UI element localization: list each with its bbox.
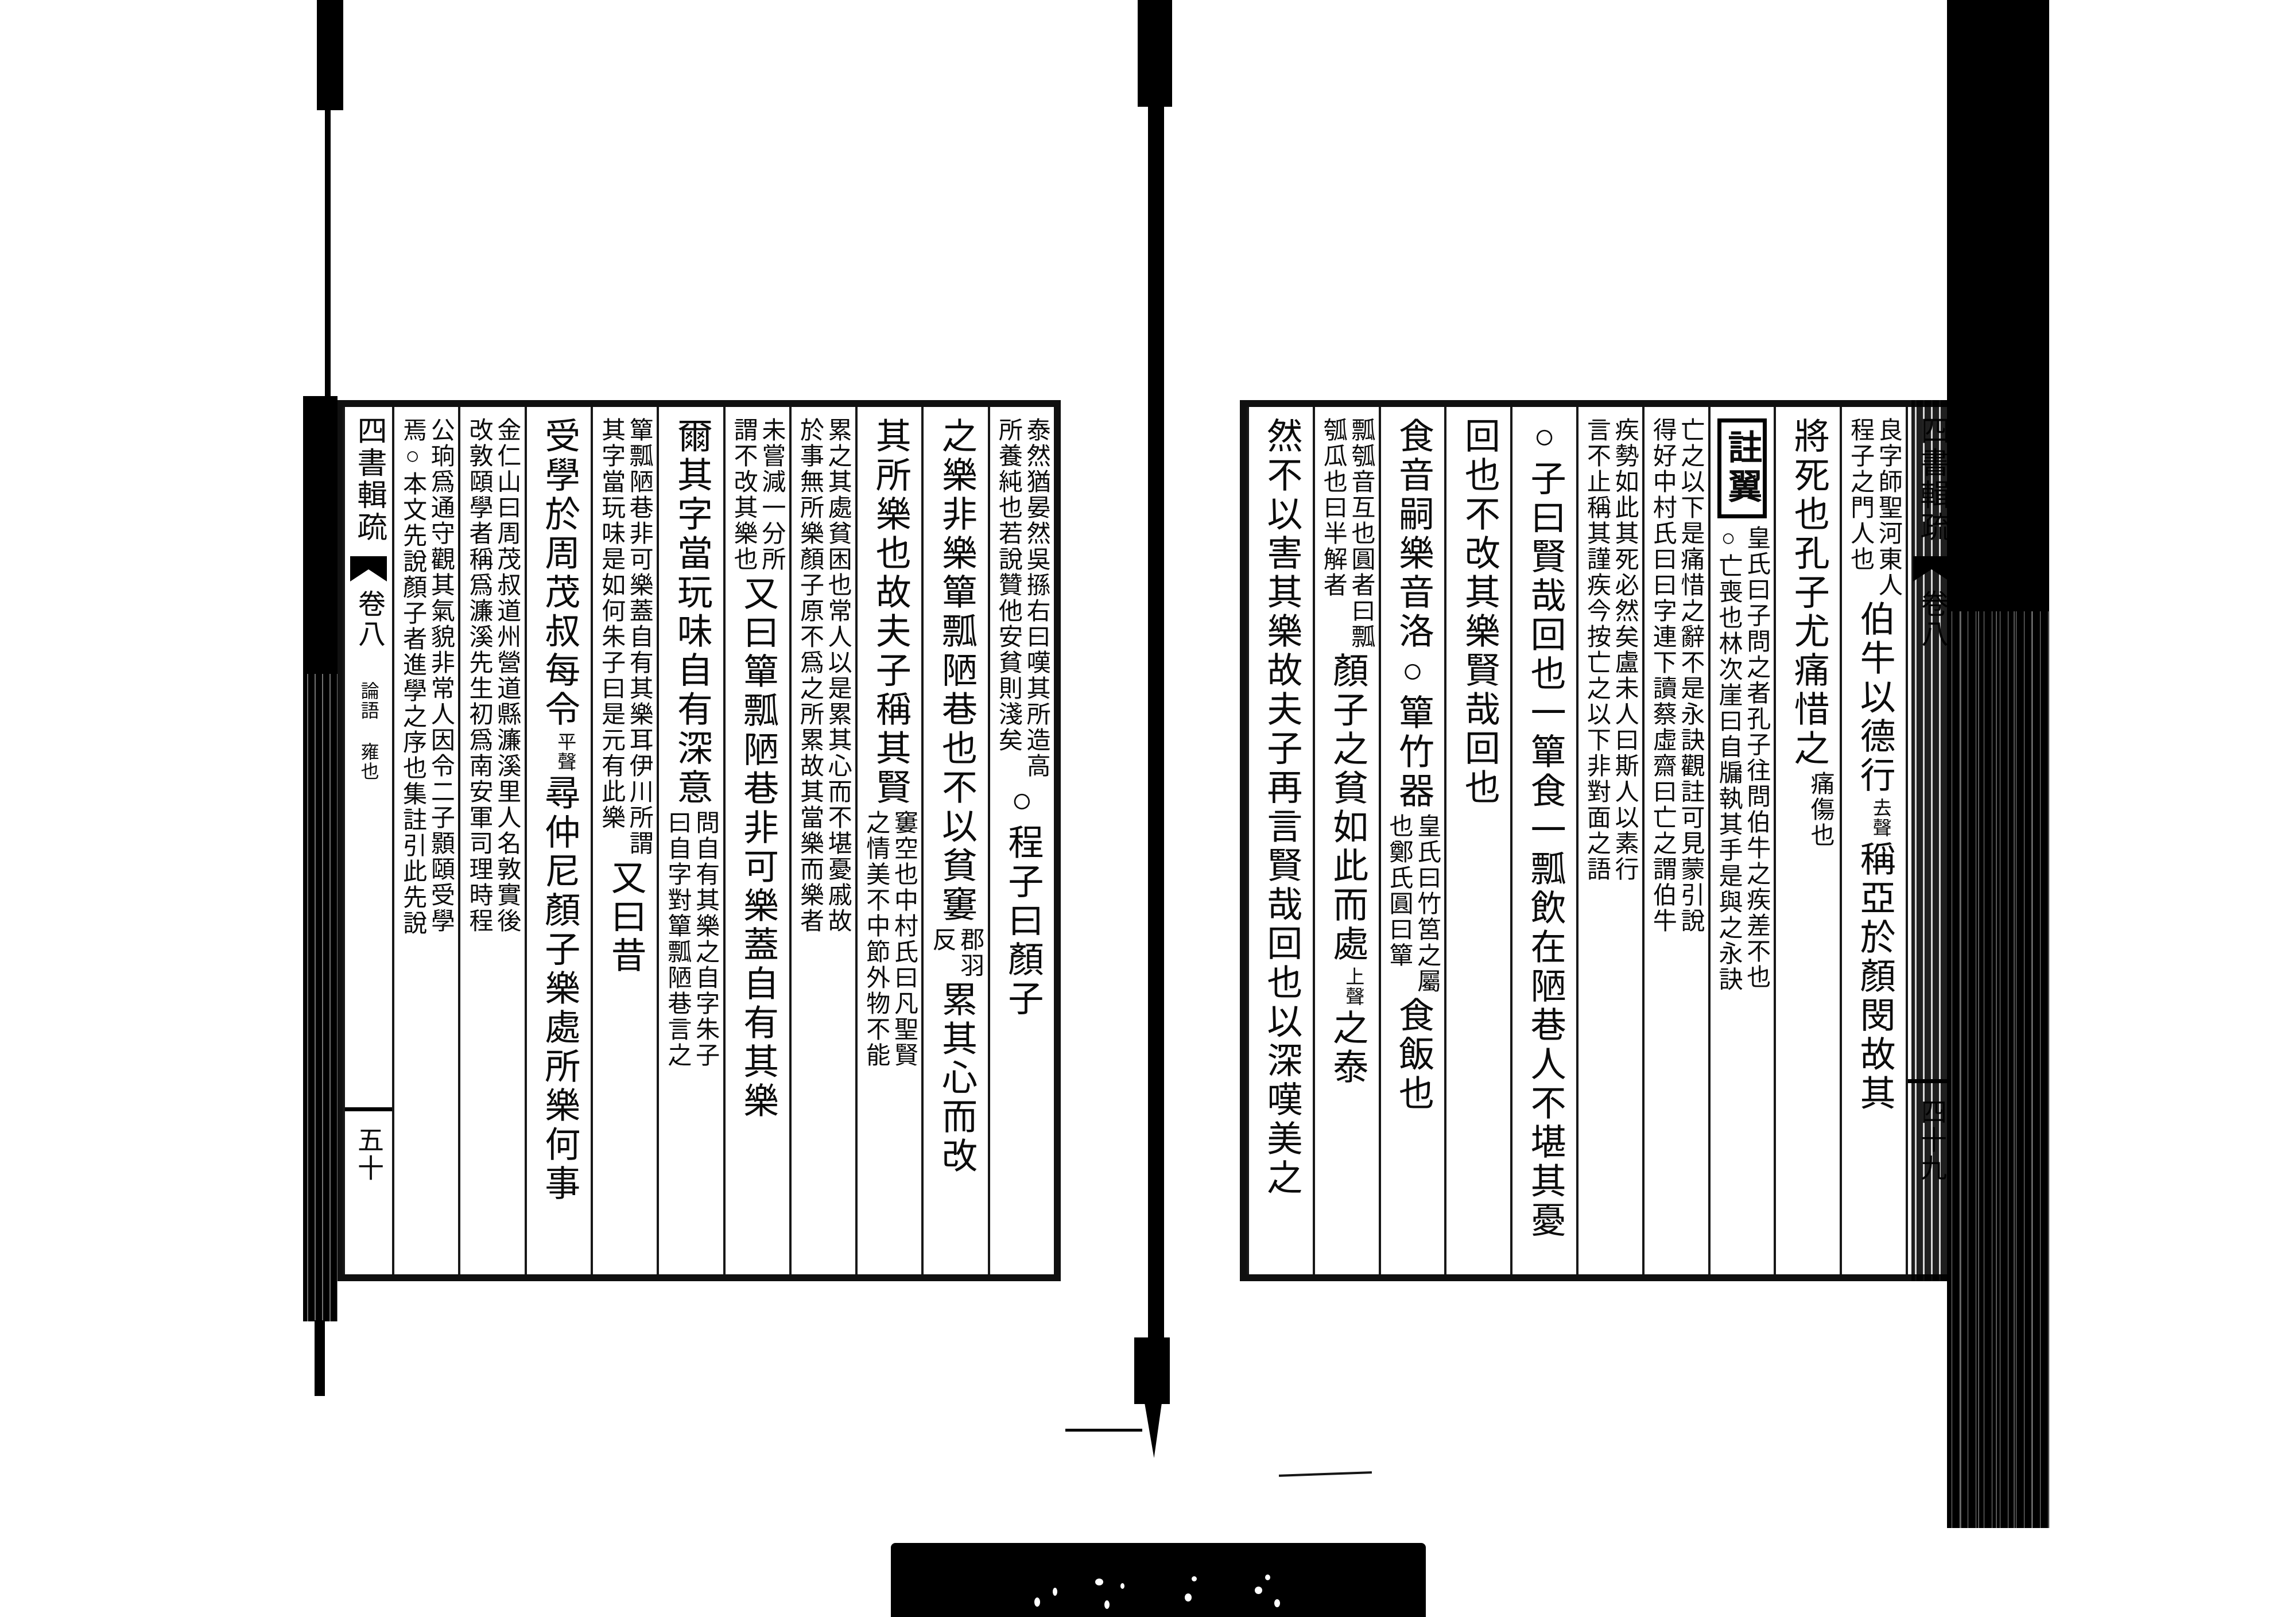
main-text-run: 食音嗣樂音洛○簞竹器 xyxy=(1395,417,1430,811)
main-text-run: 受學於周茂叔每令 xyxy=(541,417,576,730)
text-column: 良字師聖河東人程子之門人也伯牛以德行去聲稱亞於顏閔故其 xyxy=(1840,407,1906,1274)
main-text-run: 又曰昔 xyxy=(607,859,643,976)
annotation-line: 未嘗減一分所 xyxy=(757,417,785,572)
annotation-line: 之情美不中節外物不能 xyxy=(862,810,890,1068)
annotation-line: 簞瓢陋巷非可樂蓋自有其樂耳伊川所謂 xyxy=(625,417,653,856)
page-left-spine: 四書輯疏 卷八 論語 雍也 五十 xyxy=(343,407,392,1274)
center-splice-blob xyxy=(1134,1337,1170,1404)
reading-gloss: 平聲 xyxy=(555,732,574,772)
main-text-run: 尋仲尼顏子樂處所樂何事 xyxy=(541,774,576,1204)
interlinear-annotation: 瓢瓠音互也圓者曰瓢瓠瓜也曰半解者 xyxy=(1319,417,1375,650)
annotation-line: 反 xyxy=(928,927,956,979)
spine-divider-rule xyxy=(345,1107,392,1111)
annotation-line: 亡之以下是痛惜之辭不是永訣觀註可見蒙引說 xyxy=(1676,417,1704,934)
text-column: 食音嗣樂音洛○簞竹器皇氏曰竹筥之屬也鄭氏圓曰簞食飯也 xyxy=(1379,407,1445,1274)
main-text-run: 然不以害其樂故夫子再言賢哉回也以深嘆美之 xyxy=(1263,417,1298,1198)
interlinear-annotation: 累之其處貧困也常人以是累其心而不堪憂戚故於事無所樂顏子原不爲之所累故其當樂而樂者 xyxy=(796,417,851,934)
text-column: 註翼皇氏曰子問之者孔子往問伯牛之疾差不也○亡喪也林次崖曰自牖執其手是與之永訣 xyxy=(1708,407,1774,1274)
main-text-run: 其所樂也故夫子稱其賢 xyxy=(872,417,907,808)
annotation-line: 累之其處貧困也常人以是累其心而不堪憂戚故 xyxy=(823,417,851,934)
interlinear-annotation: 公珦爲通守觀其氣貌非常人因令二子顥頤受學焉○本文先說顏子者進學之序也集註引此先說 xyxy=(398,417,454,936)
interlinear-annotation: 簞瓢陋巷非可樂蓋自有其樂耳伊川所謂其字當玩味是如何朱子曰是元有此樂 xyxy=(597,417,653,856)
center-splice-bar xyxy=(1148,106,1164,1339)
annotation-line: 問自有其樂之自字朱子 xyxy=(691,810,719,1068)
interlinear-annotation: 問自有其樂之自字朱子曰自字對簞瓢陋巷言之 xyxy=(663,810,719,1068)
interlinear-annotation: 未嘗減一分所謂不改其樂也 xyxy=(729,417,785,572)
main-text-run: 累其心而改 xyxy=(938,981,974,1176)
main-text-run: ○子曰賢哉回也一簞食一瓢飲在陋巷人不堪其憂 xyxy=(1527,417,1562,1240)
text-column: 其所樂也故夫子稱其賢窶空也中村氏曰凡聖賢之情美不中節外物不能 xyxy=(855,407,921,1274)
stray-dash-mark xyxy=(1065,1429,1142,1432)
main-text-run: 之泰 xyxy=(1329,1009,1364,1087)
main-text-run: 食飯也 xyxy=(1395,996,1430,1114)
boxed-section-label: 註翼 xyxy=(1717,418,1767,518)
right-gutter-shadow xyxy=(1947,0,2049,1528)
center-splice-tip xyxy=(1145,1403,1162,1458)
annotation-line: 曰自字對簞瓢陋巷言之 xyxy=(663,810,691,1068)
text-column: 簞瓢陋巷非可樂蓋自有其樂耳伊川所謂其字當玩味是如何朱子曰是元有此樂又曰昔 xyxy=(591,407,657,1274)
text-column: 累之其處貧困也常人以是累其心而不堪憂戚故於事無所樂顏子原不爲之所累故其當樂而樂者 xyxy=(789,407,855,1274)
interlinear-annotation: 亡之以下是痛惜之辭不是永訣觀註可見蒙引說得好中村氏曰曰字連下讀蔡虛齋曰亡之謂伯牛 xyxy=(1648,417,1704,934)
annotation-line xyxy=(1782,771,1806,848)
text-column: 然不以害其樂故夫子再言賢哉回也以深嘆美之 xyxy=(1247,407,1313,1274)
interlinear-annotation: 泰然猶晏然吳搎右曰嘆其所造高所養純也若說贊他安貧則淺矣 xyxy=(994,417,1050,779)
book-title: 四書輯疏 xyxy=(354,415,383,544)
text-column: 疾勢如此其死必然矣盧未人曰斯人以素行言不止稱其謹疾今按亡之以下非對面之語 xyxy=(1576,407,1642,1274)
annotation-line: 焉○本文先說顏子者進學之序也集註引此先說 xyxy=(398,417,426,936)
annotation-line: 於事無所樂顏子原不爲之所累故其當樂而樂者 xyxy=(796,417,824,934)
section-label: 論語 雍也 xyxy=(358,681,378,781)
annotation-line: 良字師聖河東人 xyxy=(1874,417,1902,598)
stray-scratch-mark xyxy=(1279,1471,1372,1477)
film-edge-mark xyxy=(317,0,343,110)
main-text-run: 伯牛以德行 xyxy=(1856,600,1892,796)
annotation-line: 皇氏曰子問之者孔子往問伯牛之疾差不也 xyxy=(1742,525,1770,992)
text-column: 公珦爲通守觀其氣貌非常人因令二子顥頤受學焉○本文先說顏子者進學之序也集註引此先說 xyxy=(392,407,458,1274)
text-column: 亡之以下是痛惜之辭不是永訣觀註可見蒙引說得好中村氏曰曰字連下讀蔡虛齋曰亡之謂伯牛 xyxy=(1642,407,1708,1274)
interlinear-annotation: 金仁山曰周茂叔道州營道縣濂溪里人名敦實後改敦頤學者稱爲濂溪先生初爲南安軍司理時程 xyxy=(464,417,520,934)
annotation-line: 泰然猶晏然吳搎右曰嘆其所造高 xyxy=(1022,417,1050,779)
annotation-line: 其字當玩味是如何朱子曰是元有此樂 xyxy=(597,417,625,856)
annotation-line: 皇氏曰竹筥之屬 xyxy=(1413,813,1441,994)
annotation-line: 所養純也若說贊他安貧則淺矣 xyxy=(994,417,1022,779)
main-text-run: 爾其字當玩味自有深意 xyxy=(673,417,709,808)
annotation-line: 言不止稱其謹疾今按亡之以下非對面之語 xyxy=(1583,417,1611,882)
main-text-run: 之樂非樂簞瓢陋巷也不以貧窶 xyxy=(938,417,974,925)
annotation-line: 郡羽 xyxy=(956,927,984,979)
text-column: 將死也孔子尤痛惜之痛傷也 xyxy=(1774,407,1840,1274)
page-number: 五十 xyxy=(355,1126,382,1182)
interlinear-annotation: 良字師聖河東人程子之門人也 xyxy=(1846,417,1902,598)
annotation-line: 謂不改其樂也 xyxy=(729,417,757,572)
main-text-run: 稱亞於顏閔故其 xyxy=(1856,840,1892,1114)
annotation-line: 也鄭氏圓曰簞 xyxy=(1384,813,1413,994)
annotation-line: 疾勢如此其死必然矣盧未人曰斯人以素行 xyxy=(1610,417,1638,882)
main-text-run: 將死也孔子尤痛惜之 xyxy=(1790,417,1826,769)
main-text-run: 回也不改其樂賢哉回也 xyxy=(1461,417,1496,808)
annotation-line: 公珦爲通守觀其氣貌非常人因令二子顥頤受學 xyxy=(426,417,455,936)
center-splice-bar-top xyxy=(1138,0,1172,107)
interlinear-annotation: 疾勢如此其死必然矣盧未人曰斯人以素行言不止稱其謹疾今按亡之以下非對面之語 xyxy=(1583,417,1638,882)
annotation-line: 痛傷也 xyxy=(1806,771,1834,848)
annotation-line: 程子之門人也 xyxy=(1846,417,1874,598)
annotation-line: 窶空也中村氏曰凡聖賢 xyxy=(890,810,918,1068)
text-column: 金仁山曰周茂叔道州營道縣濂溪里人名敦實後改敦頤學者稱爲濂溪先生初爲南安軍司理時程 xyxy=(458,407,524,1274)
text-column: ○子曰賢哉回也一簞食一瓢飲在陋巷人不堪其憂 xyxy=(1510,407,1576,1274)
left-gutter-shadow xyxy=(303,396,338,1321)
main-text-run: 顏子之貧如此而處 xyxy=(1329,652,1364,964)
film-density-target xyxy=(891,1543,1426,1617)
book-page-right: 四書輯疏 卷八 四十九 良字師聖河東人程子之門人也伯牛以德行去聲稱亞於顏閔故其將… xyxy=(1240,400,1962,1281)
text-column: 之樂非樂簞瓢陋巷也不以貧窶郡羽反累其心而改 xyxy=(921,407,987,1274)
text-column: 回也不改其樂賢哉回也 xyxy=(1444,407,1510,1274)
annotation-line: 金仁山曰周茂叔道州營道縣濂溪里人名敦實後 xyxy=(492,417,521,934)
annotation-line: 瓠瓜也曰半解者 xyxy=(1319,417,1347,650)
volume-label: 卷八 xyxy=(355,590,382,649)
reading-gloss: 上聲 xyxy=(1343,967,1362,1007)
annotation-line: 改敦頤學者稱爲濂溪先生初爲南安軍司理時程 xyxy=(464,417,492,934)
left-gutter-shadow-tail xyxy=(315,1320,325,1396)
annotation-line: ○亡喪也林次崖曰自牖執其手是與之永訣 xyxy=(1714,525,1742,992)
book-page-left: 泰然猶晏然吳搎右曰嘆其所造高所養純也若說贊他安貧則淺矣○程子曰顏子之樂非樂簞瓢陋… xyxy=(336,400,1061,1281)
reading-gloss: 去聲 xyxy=(1870,798,1889,838)
text-column: 受學於周茂叔每令平聲尋仲尼顏子樂處所樂何事 xyxy=(525,407,591,1274)
main-text-run: ○程子曰顏子 xyxy=(1004,781,1040,1019)
interlinear-annotation: 皇氏曰竹筥之屬也鄭氏圓曰簞 xyxy=(1384,813,1440,994)
film-edge-line xyxy=(325,109,331,402)
annotation-line: 得好中村氏曰曰字連下讀蔡虛齋曰亡之謂伯牛 xyxy=(1648,417,1676,934)
text-column: 瓢瓠音互也圓者曰瓢瓠瓜也曰半解者顏子之貧如此而處上聲之泰 xyxy=(1313,407,1379,1274)
right-gutter-bleed xyxy=(1911,400,1949,1281)
text-column: 未嘗減一分所謂不改其樂也又曰簞瓢陋巷非可樂蓋自有其樂 xyxy=(723,407,789,1274)
interlinear-annotation: 痛傷也 xyxy=(1782,771,1834,848)
text-column: 泰然猶晏然吳搎右曰嘆其所造高所養純也若說贊他安貧則淺矣○程子曰顏子 xyxy=(988,407,1054,1274)
annotation-line: 瓢瓠音互也圓者曰瓢 xyxy=(1347,417,1375,650)
interlinear-annotation: 郡羽反 xyxy=(928,927,983,979)
main-text-run: 又曰簞瓢陋巷非可樂蓋自有其樂 xyxy=(739,575,775,1121)
fishtail-ornament-icon xyxy=(350,556,387,581)
interlinear-annotation: 窶空也中村氏曰凡聖賢之情美不中節外物不能 xyxy=(862,810,917,1068)
interlinear-annotation: 皇氏曰子問之者孔子往問伯牛之疾差不也○亡喪也林次崖曰自牖執其手是與之永訣 xyxy=(1714,525,1770,992)
scanned-book-spread: 四書輯疏 卷八 四十九 良字師聖河東人程子之門人也伯牛以德行去聲稱亞於顏閔故其將… xyxy=(0,0,2296,1617)
text-column: 爾其字當玩味自有深意問自有其樂之自字朱子曰自字對簞瓢陋巷言之 xyxy=(657,407,723,1274)
